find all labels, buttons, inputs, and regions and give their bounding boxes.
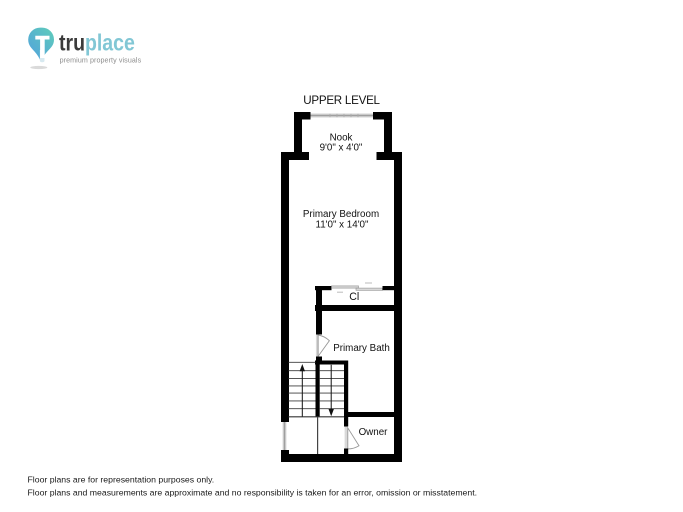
svg-text:premium property visuals: premium property visuals [60,56,142,64]
svg-text:UPPER LEVEL: UPPER LEVEL [303,94,380,107]
svg-text:Cl: Cl [349,291,359,303]
svg-text:Primary Bath: Primary Bath [333,343,390,354]
svg-text:Primary Bedroom: Primary Bedroom [303,209,379,220]
svg-text:9'0" x 4'0": 9'0" x 4'0" [320,142,363,153]
svg-text:Floor plans and measurements a: Floor plans and measurements are approxi… [28,488,478,498]
svg-text:truplace: truplace [59,29,135,56]
svg-text:Owner: Owner [359,427,389,438]
svg-text:Floor plans are for representa: Floor plans are for representation purpo… [28,474,215,484]
svg-text:11'0" x 14'0": 11'0" x 14'0" [315,219,369,230]
